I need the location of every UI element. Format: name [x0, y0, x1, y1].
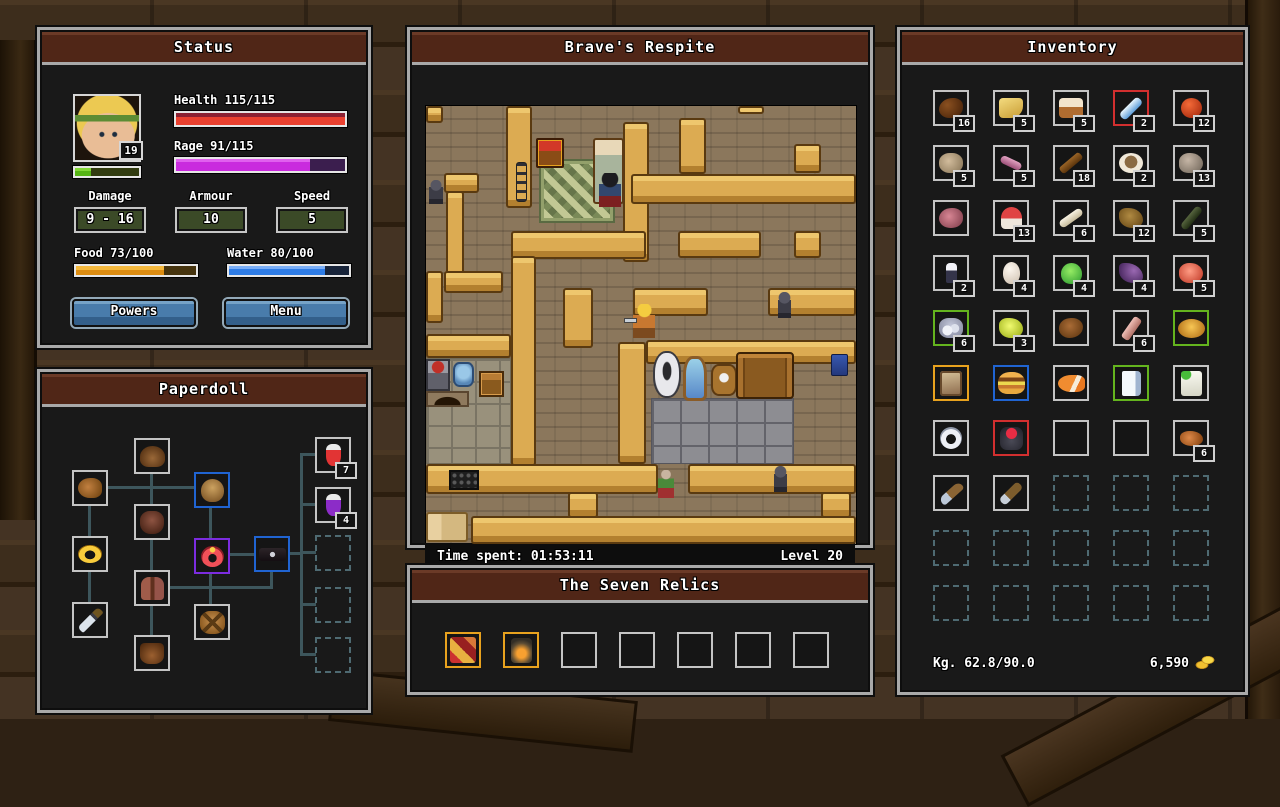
wall-beam: [444, 173, 479, 193]
paperdoll-panel: Paperdoll 74: [40, 372, 368, 710]
count-badge: 6: [953, 335, 975, 352]
status-panel-title: Status: [42, 32, 366, 65]
wall-beam: [471, 516, 856, 544]
inventory-slot-copper-chunks[interactable]: 6: [1173, 420, 1209, 456]
count-badge: 6: [1073, 225, 1095, 242]
paperdoll-connector: [300, 603, 316, 606]
location-title-text: Brave's Respite: [565, 38, 715, 56]
health-bar-fill: [176, 113, 345, 125]
status-panel-body: 19 Health 115/115 Rage 91/115 Damage 9 -…: [42, 65, 366, 341]
speed-label: Speed: [278, 189, 346, 203]
wall-beam: [568, 492, 598, 518]
white-book-icon: [1122, 371, 1141, 396]
silver-ring-icon: [940, 427, 962, 449]
rage-label: Rage 91/115: [174, 139, 253, 153]
inventory-slot-pickaxe[interactable]: [933, 475, 969, 511]
inventory-slot-locked: [933, 585, 969, 621]
inventory-slot-green-slime[interactable]: 4: [1053, 255, 1089, 291]
inventory-slot-locked: [933, 530, 969, 566]
amulet-icon: [201, 546, 224, 567]
relics-title-text: The Seven Relics: [560, 576, 721, 594]
map-statue: [778, 292, 791, 318]
damage-value: 9 - 16: [74, 207, 146, 233]
wall-beam: [679, 118, 706, 174]
wall-beam: [511, 231, 646, 259]
rage-bar-fill: [176, 159, 310, 171]
wall-beam: [444, 271, 503, 293]
inventory-slot-leather-scrap[interactable]: 12: [1113, 200, 1149, 236]
map-bstone: [651, 398, 794, 464]
relic-slot-7-empty[interactable]: [793, 632, 829, 668]
weight-label: Kg. 62.8/90.0: [933, 656, 1035, 671]
feet-icon: [140, 643, 164, 664]
count-badge: 16: [953, 115, 975, 132]
health-label: Health 115/115: [174, 93, 275, 107]
map-viewport[interactable]: [425, 105, 857, 545]
inventory-slot-roast[interactable]: [1053, 310, 1089, 346]
inventory-slot-yellow-crystal[interactable]: 3: [993, 310, 1029, 346]
relics-panel-title: The Seven Relics: [412, 570, 868, 603]
map-panel-body: Time spent: 01:53:11 Level 20: [412, 65, 868, 541]
inventory-grid: 16552125518213136125244456366: [933, 90, 1211, 621]
belt-icon: [259, 548, 286, 561]
inventory-slot-bread[interactable]: 5: [1053, 90, 1089, 126]
food-label: Food 73/100: [74, 246, 153, 260]
paperdoll-connector: [300, 453, 303, 655]
inventory-slot-signed-scroll[interactable]: [1173, 365, 1209, 401]
inventory-slot-hunting-bow[interactable]: 5: [1173, 200, 1209, 236]
inventory-slot-locked: [1053, 475, 1089, 511]
time-spent-label: Time spent: 01:53:11: [437, 549, 594, 564]
inventory-slot-locked: [1173, 530, 1209, 566]
inventory-slot-red-gem-armor[interactable]: [993, 420, 1029, 456]
inventory-slot-bone[interactable]: 6: [1053, 200, 1089, 236]
speed-value: 5: [276, 207, 348, 233]
count-badge: 5: [953, 170, 975, 187]
inventory-slot-hide[interactable]: 5: [933, 145, 969, 181]
paperdoll-connector: [300, 653, 316, 656]
inventory-slot-burger[interactable]: [993, 365, 1029, 401]
paperdoll-connector: [168, 586, 273, 589]
wall-beam: [563, 288, 593, 348]
map-panel-title: Brave's Respite: [412, 32, 868, 65]
wall-beam: [678, 231, 761, 258]
inventory-slot-worm[interactable]: 5: [993, 145, 1029, 181]
brown-tome-icon: [940, 371, 962, 396]
wall-beam: [426, 106, 443, 123]
map-dresser: [736, 352, 794, 399]
paperdoll-panel-title: Paperdoll: [42, 374, 366, 407]
map-mirror: [683, 356, 707, 401]
map-kchest: [479, 371, 504, 397]
inventory-panel-title: Inventory: [902, 32, 1243, 65]
equip-slot-quick-slot-3: [315, 535, 351, 571]
equip-slot-quick-slot-1[interactable]: 7: [315, 437, 351, 473]
paperdoll-connector: [300, 551, 316, 554]
count-badge: 13: [1013, 225, 1035, 242]
clownfish-icon: [1058, 375, 1085, 392]
legs-icon: [141, 577, 164, 600]
inventory-slot-pink-plank[interactable]: 6: [1113, 310, 1149, 346]
wall-beam: [821, 492, 851, 518]
inventory-title-text: Inventory: [1027, 38, 1117, 56]
paperdoll-connector: [105, 486, 195, 489]
map-statue: [429, 180, 443, 204]
map-chest: [536, 138, 564, 168]
count-badge: 4: [1073, 280, 1095, 297]
inventory-slot-dried-meat[interactable]: 16: [933, 90, 969, 126]
relic-slot-6-empty[interactable]: [735, 632, 771, 668]
map-status-bar: Time spent: 01:53:11 Level 20: [425, 543, 855, 570]
map-player: [633, 304, 655, 338]
inventory-slot-locked: [1113, 530, 1149, 566]
count-badge: 6: [1133, 335, 1155, 352]
paperdoll-connector: [150, 472, 153, 637]
inventory-slot-locked: [993, 530, 1029, 566]
pickaxe-icon: [938, 481, 964, 506]
paperdoll-body: 74: [42, 407, 366, 706]
inventory-slot-feathers[interactable]: 2: [1113, 90, 1149, 126]
red-gem-armor-icon: [1000, 427, 1023, 450]
armour-value: 10: [175, 207, 247, 233]
count-badge: 4: [335, 512, 357, 529]
xp-bar: [73, 166, 141, 178]
count-badge: 4: [1013, 280, 1035, 297]
inventory-footer: Kg. 62.8/90.0 6,590: [933, 655, 1215, 671]
wall-beam: [738, 106, 764, 114]
wall-beam: [618, 342, 646, 464]
worm-icon: [999, 155, 1022, 172]
count-badge: 5: [1073, 115, 1095, 132]
wall-beam: [794, 144, 821, 173]
count-badge: 2: [1133, 170, 1155, 187]
count-badge: 13: [1193, 170, 1215, 187]
map-bed2: [426, 512, 468, 542]
xp-bar-fill: [75, 168, 91, 176]
equip-slot-hands[interactable]: [72, 470, 108, 506]
roast-icon: [1059, 318, 1083, 338]
equip-slot-legs[interactable]: [134, 570, 170, 606]
inventory-slot-apple[interactable]: 12: [1173, 90, 1209, 126]
count-badge: 5: [1013, 170, 1035, 187]
wall-beam: [631, 174, 856, 204]
paperdoll-connector: [300, 503, 316, 506]
inventory-slot-cheese[interactable]: 5: [993, 90, 1029, 126]
food-bar-fill: [76, 266, 164, 275]
inventory-slot-branch[interactable]: 18: [1053, 145, 1089, 181]
inventory-slot-figurine[interactable]: 2: [933, 255, 969, 291]
count-badge: 2: [953, 280, 975, 297]
head-icon: [201, 479, 224, 502]
inventory-body: 16552125518213136125244456366 Kg. 62.8/9…: [902, 65, 1243, 688]
powers-button[interactable]: Powers: [72, 299, 196, 327]
relics-panel: The Seven Relics: [410, 568, 870, 692]
map-level-label: Level 20: [780, 549, 843, 564]
equip-slot-quick-slot-4: [315, 587, 351, 623]
map-npc1: [599, 173, 621, 207]
hands-icon: [78, 478, 102, 498]
wall-beam: [426, 271, 443, 323]
count-badge: 18: [1073, 170, 1095, 187]
map-npc2: [658, 470, 674, 498]
inventory-slot-raw-steak[interactable]: [933, 200, 969, 236]
map-panel: Brave's Respite Time spent: 01:53:11 Lev…: [410, 30, 870, 545]
equip-slot-weapon[interactable]: [72, 602, 108, 638]
ring-icon: [78, 545, 102, 563]
wall-beam: [511, 256, 536, 466]
map-toilet: [653, 351, 681, 398]
equip-slot-belt[interactable]: [254, 536, 290, 572]
relic-slot-4-empty[interactable]: [619, 632, 655, 668]
equip-slot-feet[interactable]: [134, 635, 170, 671]
inventory-slot-empty[interactable]: [1053, 420, 1089, 456]
gold-amount: 6,590: [1150, 655, 1215, 671]
count-badge: 6: [1193, 445, 1215, 462]
map-stove: [426, 359, 450, 391]
status-panel: Status 19 Health 115/115 Rage 91/115 Dam…: [40, 30, 368, 345]
rage-bar: [174, 157, 347, 173]
inventory-slot-locked: [1113, 475, 1149, 511]
armour-label: Armour: [177, 189, 245, 203]
inventory-slot-egg[interactable]: 4: [993, 255, 1029, 291]
water-label: Water 80/100: [227, 246, 314, 260]
gold-coins-icon: [1195, 655, 1215, 670]
health-bar: [174, 111, 347, 127]
inventory-slot-bat-wing[interactable]: 4: [1113, 255, 1149, 291]
count-badge: 5: [1193, 225, 1215, 242]
equip-slot-quick-slot-5: [315, 637, 351, 673]
equip-slot-back[interactable]: [194, 604, 230, 640]
inventory-slot-stone[interactable]: 13: [1173, 145, 1209, 181]
inventory-slot-marbled-meat[interactable]: 5: [1173, 255, 1209, 291]
inventory-slot-white-book[interactable]: [1113, 365, 1149, 401]
wall-beam: [688, 464, 856, 494]
paperdoll-title-text: Paperdoll: [159, 380, 249, 398]
water-bar-fill: [229, 266, 325, 275]
helmet-icon: [140, 446, 165, 467]
inventory-slot-locked: [1053, 585, 1089, 621]
relic-slot-patchwork-relic[interactable]: [445, 632, 481, 668]
inventory-slot-empty[interactable]: [1113, 420, 1149, 456]
relics-body: [412, 603, 868, 688]
map-towel: [831, 354, 848, 376]
raw-steak-icon: [939, 208, 963, 228]
wall-beam: [426, 334, 511, 358]
count-badge: 3: [1013, 335, 1035, 352]
count-badge: 7: [335, 462, 357, 479]
equip-slot-amulet[interactable]: [194, 538, 230, 574]
inventory-slot-locked: [1053, 530, 1089, 566]
map-furnace: [426, 391, 469, 407]
map-statue: [774, 466, 787, 492]
inventory-slot-hatchet[interactable]: [993, 475, 1029, 511]
relic-slot-3-empty[interactable]: [561, 632, 597, 668]
inventory-slot-clownfish[interactable]: [1053, 365, 1089, 401]
inventory-slot-stew-bowl[interactable]: 2: [1113, 145, 1149, 181]
hatchet-icon: [999, 481, 1024, 506]
chest-icon: [140, 511, 164, 534]
water-bar: [227, 264, 351, 277]
inventory-slot-locked: [993, 585, 1029, 621]
relic-slot-lantern-relic[interactable]: [503, 632, 539, 668]
count-badge: 12: [1133, 225, 1155, 242]
wall-beam: [794, 231, 821, 258]
signed-scroll-icon: [1181, 371, 1202, 396]
inventory-slot-locked: [1173, 475, 1209, 511]
level-badge: 19: [119, 141, 143, 160]
equip-slot-helmet[interactable]: [134, 438, 170, 474]
inventory-panel: Inventory 16552125518213136125244456366 …: [900, 30, 1245, 692]
equip-slot-quick-slot-2[interactable]: 4: [315, 487, 351, 523]
golden-pie-icon: [1178, 319, 1205, 338]
copper-chunks-icon: [1180, 431, 1203, 446]
map-kettle: [453, 362, 474, 387]
equip-slot-chest[interactable]: [134, 504, 170, 540]
inventory-slot-locked: [1173, 585, 1209, 621]
status-title-text: Status: [174, 38, 234, 56]
inventory-slot-silver-ring[interactable]: [933, 420, 969, 456]
food-bar: [74, 264, 198, 277]
count-badge: 5: [1013, 115, 1035, 132]
count-badge: 5: [1193, 280, 1215, 297]
burger-icon: [998, 372, 1025, 394]
paperdoll-connector: [300, 453, 316, 456]
inventory-slot-golden-pie[interactable]: [1173, 310, 1209, 346]
patchwork-relic-icon: [450, 637, 476, 663]
damage-label: Damage: [76, 189, 144, 203]
wood-post-left: [0, 40, 37, 520]
back-icon: [200, 611, 225, 634]
count-badge: 12: [1193, 115, 1215, 132]
count-badge: 4: [1133, 280, 1155, 297]
relic-slot-5-empty[interactable]: [677, 632, 713, 668]
equip-slot-head[interactable]: [194, 472, 230, 508]
map-pole: [516, 162, 527, 202]
inventory-slot-brown-tome[interactable]: [933, 365, 969, 401]
map-grate: [449, 470, 479, 490]
inventory-slot-silver-ore[interactable]: 6: [933, 310, 969, 346]
inventory-slot-locked: [1113, 585, 1149, 621]
map-basin: [711, 364, 737, 396]
inventory-slot-red-mushroom[interactable]: 13: [993, 200, 1029, 236]
menu-button[interactable]: Menu: [224, 299, 348, 327]
count-badge: 2: [1133, 115, 1155, 132]
paperdoll-connector: [228, 553, 256, 556]
lantern-relic-icon: [511, 638, 532, 663]
relics-row: [445, 632, 829, 668]
weapon-icon: [77, 607, 103, 633]
equip-slot-ring[interactable]: [72, 536, 108, 572]
